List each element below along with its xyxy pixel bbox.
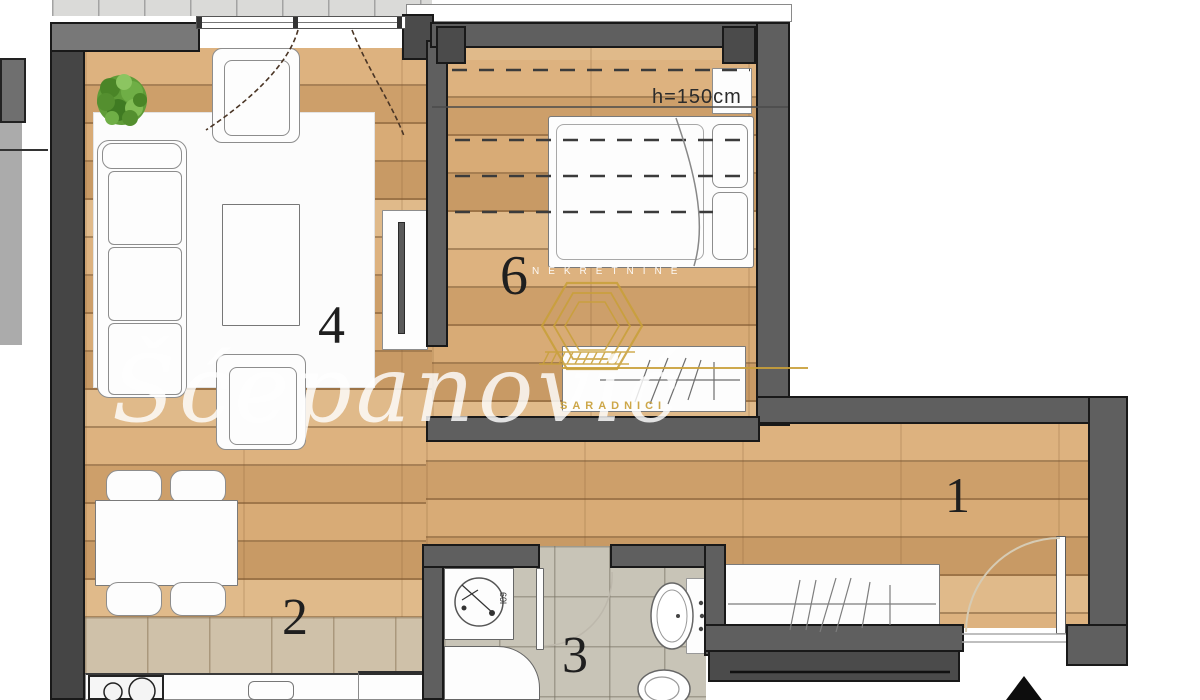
balcony-floor	[52, 0, 432, 16]
floor-plan: 60l 4 6 1 2 3 h=150cm NEKRETNINE Šćepano…	[0, 0, 1200, 700]
sofa-cushion	[108, 247, 182, 321]
wall-bedroom-pillar-right	[722, 26, 756, 64]
sofa-armrest	[102, 143, 182, 169]
pillow	[712, 192, 748, 260]
room-number-bathroom: 3	[562, 630, 588, 682]
north-arrow-icon	[1006, 676, 1042, 700]
dining-table	[95, 500, 238, 586]
wall-living-bedroom	[426, 40, 448, 347]
dining-chair	[106, 470, 162, 504]
sofa-cushion	[108, 323, 182, 395]
tv	[398, 222, 405, 334]
bedroom-window-band	[406, 4, 792, 22]
wall-bedroom-top	[430, 22, 760, 48]
neighbor-wall-block	[0, 58, 26, 123]
room-number-bedroom: 6	[500, 248, 528, 304]
entry-threshold	[960, 628, 1068, 666]
washing-machine	[444, 568, 514, 640]
neighbor-wall-light	[0, 123, 22, 345]
wall-hall-bottom-outer	[708, 650, 960, 682]
wall-right	[1088, 396, 1128, 632]
stove	[88, 675, 164, 700]
room-number-hallway: 1	[945, 470, 970, 520]
ceiling-height-label: h=150cm	[652, 86, 742, 109]
sofa-cushion	[108, 171, 182, 245]
wall-bedroom-bottom	[426, 416, 760, 442]
armchair-bottom-cushion	[229, 367, 297, 445]
wall-right-foot	[1066, 624, 1128, 666]
balcony-door-rail	[200, 22, 402, 23]
balcony-door-handle	[397, 17, 402, 28]
bed-mattress	[556, 124, 704, 260]
wall-bedroom-pillar-left	[436, 26, 466, 64]
kitchen-counter-right	[358, 671, 426, 700]
room-number-dining: 2	[282, 592, 308, 644]
dresser	[562, 346, 746, 412]
wall-bedroom-right	[756, 22, 790, 426]
coffee-table	[222, 204, 300, 326]
entry-door-leaf	[1056, 536, 1066, 634]
dining-chair	[106, 582, 162, 616]
wall-bath-top-left	[422, 544, 540, 568]
bathroom-door-leaf	[536, 568, 544, 650]
armchair-top-cushion	[224, 60, 290, 136]
wall-left	[50, 22, 85, 700]
wall-hall-bottom	[704, 624, 964, 652]
kitchen-sink	[248, 681, 294, 700]
balcony-door-handle	[293, 17, 298, 28]
dining-chair	[170, 470, 226, 504]
tv-stand	[382, 210, 428, 350]
balcony-door-handle	[197, 17, 202, 28]
pillow	[712, 124, 748, 188]
dining-chair	[170, 582, 226, 616]
wall-top-left	[50, 22, 200, 52]
wall-bath-top-right	[610, 544, 712, 568]
wall-hall-top	[756, 396, 1096, 424]
room-number-living: 4	[318, 298, 345, 352]
